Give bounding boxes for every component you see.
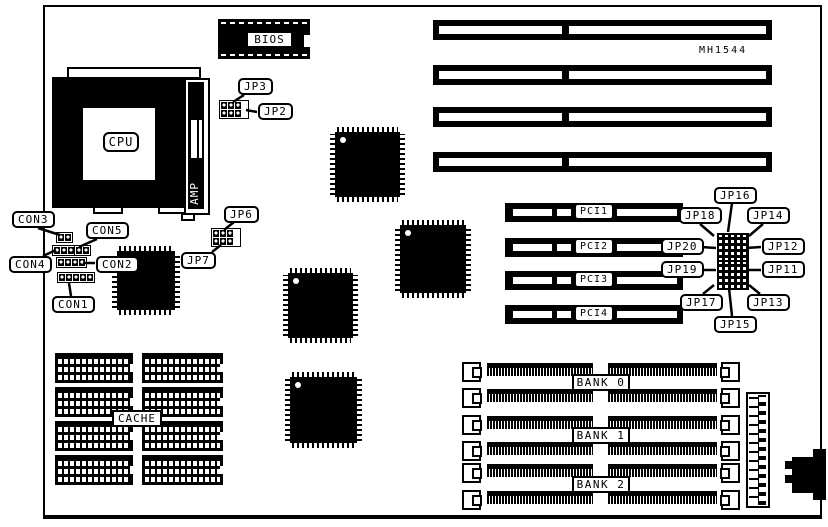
pin1-dot (405, 230, 411, 236)
keyboard-connector-tab (785, 475, 793, 483)
pci-slot-1: PCI1 (505, 203, 683, 222)
pci-slot-3: PCI3 (505, 271, 683, 290)
jumper-pin-grid-bottom (717, 260, 749, 290)
pci-slot-4: PCI4 (505, 305, 683, 324)
amp-window (191, 120, 197, 158)
callout-jp20: JP20 (661, 238, 704, 255)
con4-header (52, 245, 76, 256)
cpu-socket-lever (67, 67, 201, 79)
callout-jp17: JP17 (680, 294, 723, 311)
power-connector (746, 392, 770, 508)
isa-slot-3 (433, 107, 772, 127)
amp-module-body: AMP (188, 82, 204, 209)
isa-slot-4 (433, 152, 772, 172)
amp-module: AMP (184, 78, 210, 215)
keyboard-connector-tab (785, 461, 793, 469)
pci1-label: PCI1 (574, 203, 614, 220)
con2-header (56, 257, 87, 268)
keyboard-connector (813, 449, 826, 500)
pin1-dot (295, 382, 301, 388)
bios-chip-notch (304, 35, 311, 47)
bank1-label: BANK 1 (572, 427, 630, 444)
isa-slot-2 (433, 65, 772, 85)
cache-chip (142, 353, 223, 383)
cache-chip (55, 353, 133, 383)
con3-header (56, 232, 73, 243)
pci-slot-2: PCI2 (505, 238, 683, 257)
cache-label: CACHE (112, 410, 162, 427)
callout-jp3: JP3 (238, 78, 273, 95)
callout-jp14: JP14 (747, 207, 790, 224)
qfp-chip-u4 (285, 372, 362, 448)
callout-jp15: JP15 (714, 316, 757, 333)
callout-jp6: JP6 (224, 206, 259, 223)
qfp-chip-u3 (283, 268, 358, 343)
callout-con3: CON3 (12, 211, 55, 228)
amp-label: AMP (188, 182, 204, 205)
bios-label: BIOS (246, 31, 293, 48)
bank2-label: BANK 2 (572, 476, 630, 493)
callout-con4: CON4 (9, 256, 52, 273)
pci4-label: PCI4 (574, 305, 614, 322)
bank0-label: BANK 0 (572, 374, 630, 391)
cpu-label: CPU (103, 132, 139, 152)
callout-jp13: JP13 (747, 294, 790, 311)
callout-con1: CON1 (52, 296, 95, 313)
motherboard-diagram: CPU AMP BIOS JP3 JP2 JP6 JP7 CON3 (0, 0, 828, 527)
callout-jp2: JP2 (258, 103, 293, 120)
pin1-dot (293, 278, 299, 284)
qfp-chip-u1 (330, 127, 405, 202)
pci2-label: PCI2 (574, 238, 614, 255)
callout-con2: CON2 (96, 256, 139, 273)
jumper-pin-grid-top (717, 233, 749, 263)
pin1-dot (340, 137, 346, 143)
amp-window (199, 120, 202, 158)
callout-jp11: JP11 (762, 261, 805, 278)
isa-slot-1 (433, 20, 772, 40)
callout-jp18: JP18 (679, 207, 722, 224)
callout-jp16: JP16 (714, 187, 757, 204)
jumper-block-jp6-jp7 (211, 228, 241, 247)
jumper-block-jp3-jp2 (219, 100, 249, 119)
part-number: MH1544 (699, 45, 747, 56)
qfp-chip-u2 (395, 220, 471, 298)
callout-con5: CON5 (86, 222, 129, 239)
con5-header (74, 245, 91, 256)
cache-chip (142, 455, 223, 485)
keyboard-connector-body (792, 457, 814, 493)
pci3-label: PCI3 (574, 271, 614, 288)
cpu-socket-foot (93, 206, 123, 214)
cache-chip (55, 455, 133, 485)
callout-jp7: JP7 (181, 252, 216, 269)
con1-header (57, 272, 95, 283)
callout-jp12: JP12 (762, 238, 805, 255)
callout-jp19: JP19 (661, 261, 704, 278)
